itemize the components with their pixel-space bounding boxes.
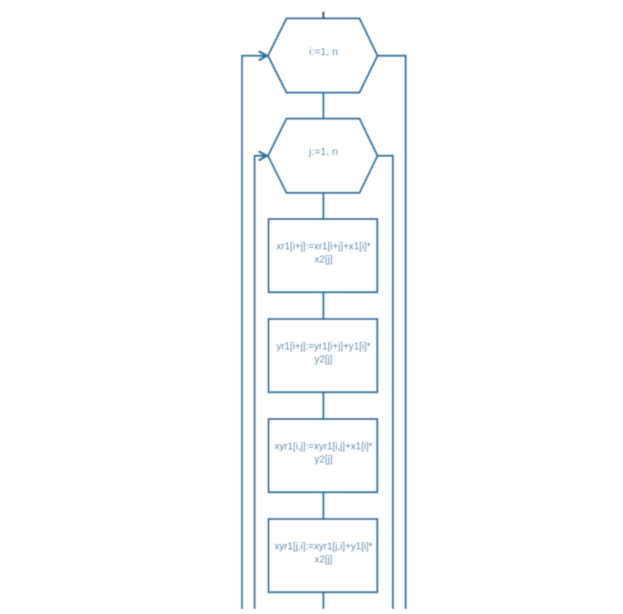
svg-text:xyr1[j,i]:=xyr1[j,i]+y1[i]*: xyr1[j,i]:=xyr1[j,i]+y1[i]* [275, 542, 373, 553]
svg-text:i:=1, n: i:=1, n [309, 46, 338, 58]
svg-text:xr1[i+j]:=xr1[i+j]+x1[i]*: xr1[i+j]:=xr1[i+j]+x1[i]* [276, 242, 370, 253]
svg-text:yr1[i+j]:=yr1[i+j]+y1[i]*: yr1[i+j]:=yr1[i+j]+y1[i]* [276, 342, 370, 353]
svg-text:xyr1[i,j]:=xyr1[i,j]+x1[i]*: xyr1[i,j]:=xyr1[i,j]+x1[i]* [275, 442, 373, 453]
svg-text:y2[j]: y2[j] [315, 454, 333, 465]
svg-text:y2[j]: y2[j] [315, 354, 333, 365]
svg-text:x2[j]: x2[j] [315, 554, 333, 565]
svg-text:j:=1, n: j:=1, n [308, 146, 338, 158]
svg-text:x2[j]: x2[j] [315, 254, 333, 265]
